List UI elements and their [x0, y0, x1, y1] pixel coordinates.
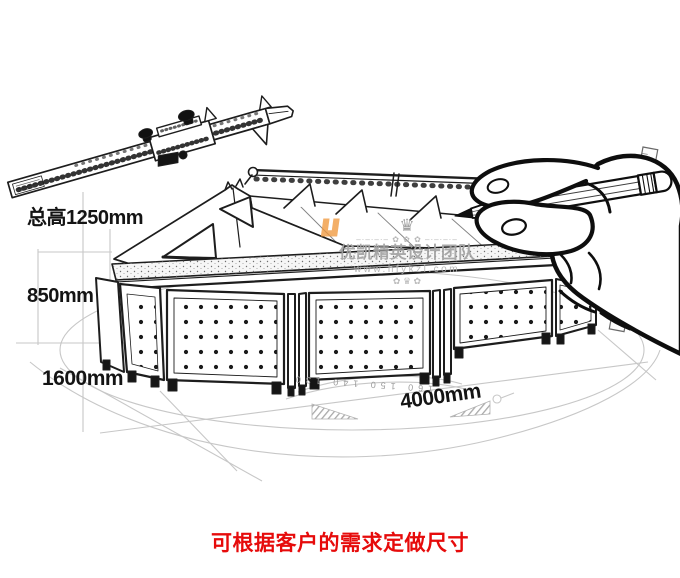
dimension-label-depth: 1600mm	[42, 367, 123, 391]
watermark-ornament: –·–·–·– ✿ ✿ ✿ –·–·–·–	[356, 236, 458, 244]
watermark-website: www.hfykzl.com	[354, 265, 460, 276]
product-dimension-illustration: 总高1250mm 850mm 1600mm 4000mm 160 150 140…	[0, 0, 680, 578]
sketch-canvas	[0, 0, 680, 578]
dimension-label-base-height: 850mm	[27, 285, 93, 308]
dimension-label-total-height: 总高1250mm	[27, 201, 143, 230]
watermark-crown-icon: ♛	[399, 217, 414, 235]
customization-note: 可根据客户的需求定做尺寸	[0, 527, 680, 557]
watermark-brand-text: 优凯精英设计团队	[339, 245, 475, 262]
watermark-ornament-bottom: ✿ ♛ ✿	[393, 277, 421, 286]
watermark: ♛ –·–·–·– ✿ ✿ ✿ –·–·–·– 优凯精英设计团队 www.hfy…	[318, 217, 496, 286]
brand-logo-icon	[318, 217, 340, 238]
